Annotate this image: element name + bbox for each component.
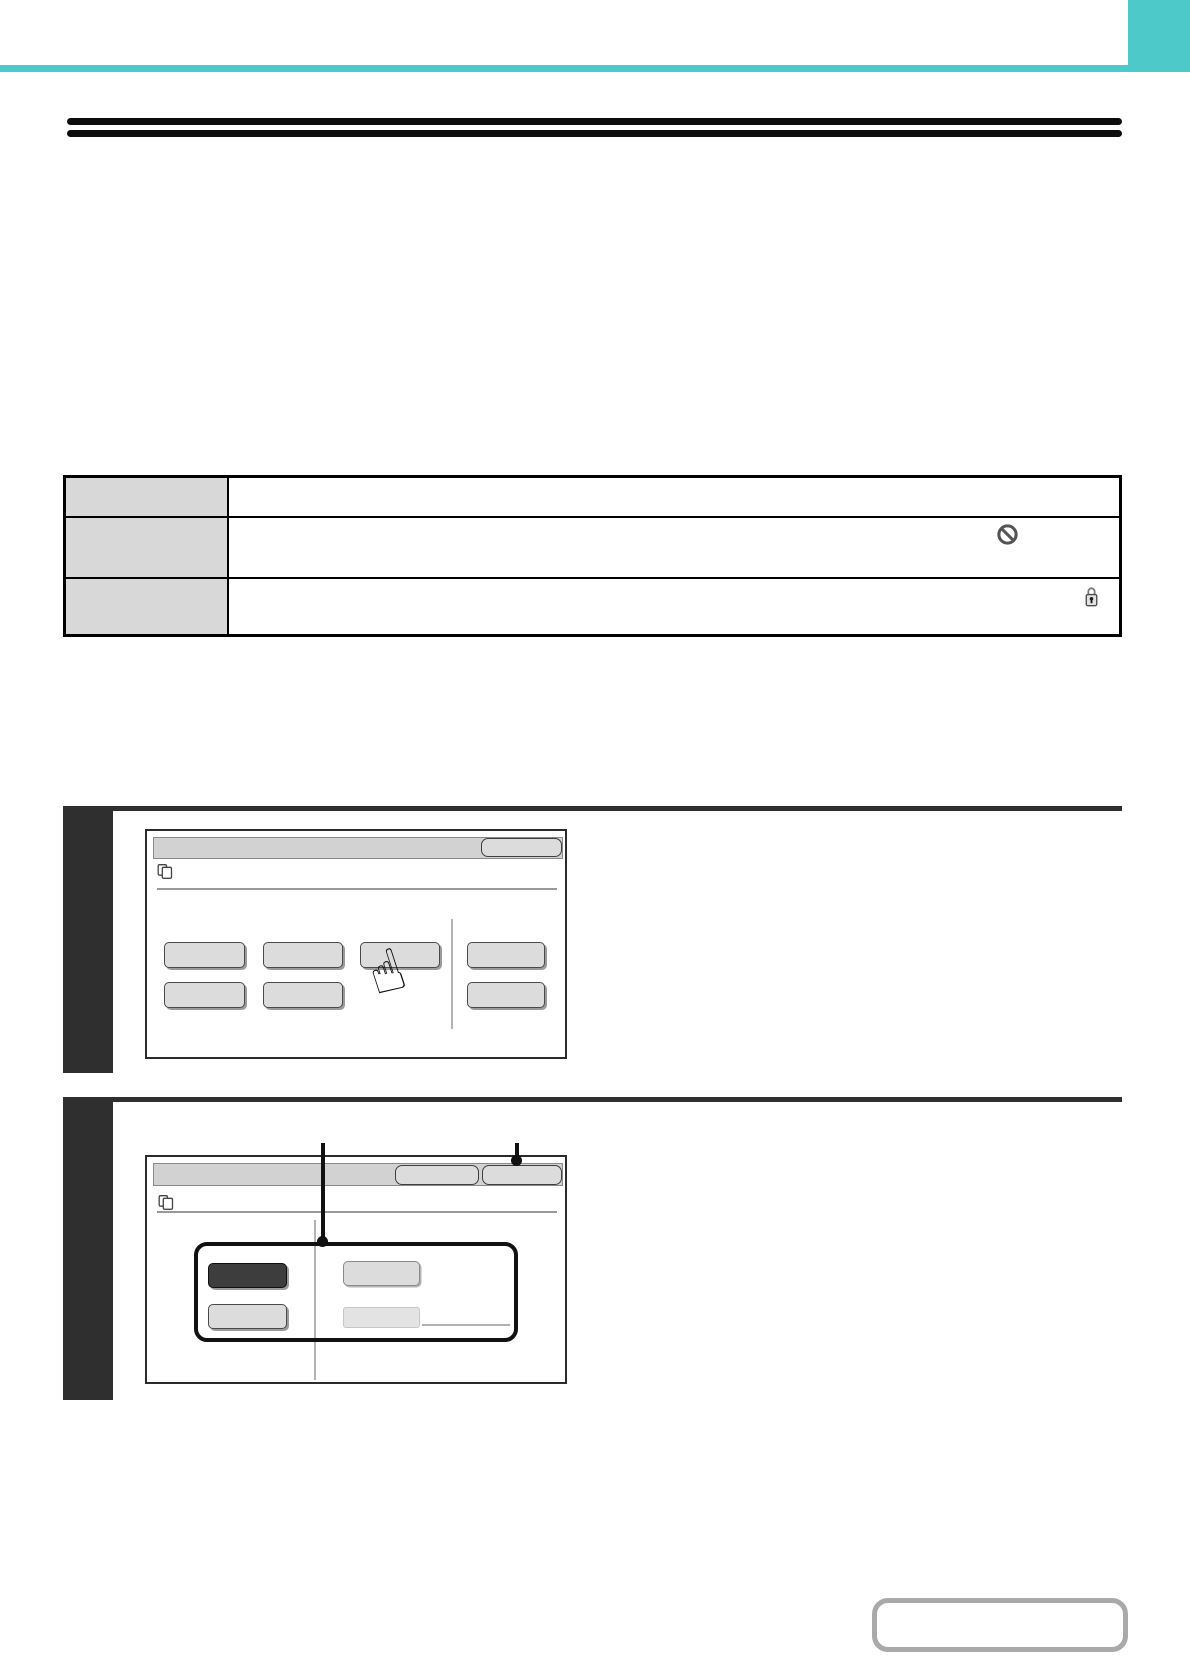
table-row-divider (66, 577, 1119, 579)
panel-key (467, 982, 545, 1008)
contents-nav-button[interactable] (872, 1598, 1128, 1652)
copy-pages-icon (157, 863, 173, 880)
page-corner-accent (1128, 0, 1190, 72)
table-row-divider (66, 516, 1119, 518)
touch-panel-screenshot-step2 (145, 1155, 567, 1384)
prohibited-icon (996, 523, 1019, 546)
callout-dot-left (317, 1236, 328, 1247)
panel-key (263, 942, 343, 968)
panel-header-separator (157, 1211, 557, 1213)
title-rule-bottom-line (67, 130, 1122, 137)
titlebar-button (481, 838, 562, 857)
touch-panel-screenshot-step1: ☝ (145, 829, 567, 1059)
step-1-rule (63, 806, 1122, 811)
header-accent-bar (0, 65, 1190, 72)
step-2-rule (63, 1097, 1122, 1102)
panel-header-separator (157, 888, 557, 890)
step-1-number-block (63, 806, 113, 1073)
lock-icon (1083, 586, 1100, 607)
panel-key (164, 942, 245, 968)
title-rule-top-line (67, 118, 1122, 125)
panel-key (467, 942, 545, 968)
manual-page: ☝ (0, 0, 1190, 1656)
panel-key (164, 982, 245, 1008)
copy-pages-icon (158, 1194, 174, 1211)
callout-dot-right (511, 1155, 522, 1166)
info-table (63, 475, 1122, 637)
step-2-number-block (63, 1097, 113, 1400)
callout-line-left (321, 1143, 325, 1242)
table-header-column (66, 478, 229, 634)
titlebar-button (395, 1165, 479, 1185)
key-column-divider (451, 919, 453, 1029)
titlebar-button-ok (482, 1165, 562, 1185)
panel-key (263, 982, 343, 1008)
callout-highlight-box (194, 1242, 518, 1342)
